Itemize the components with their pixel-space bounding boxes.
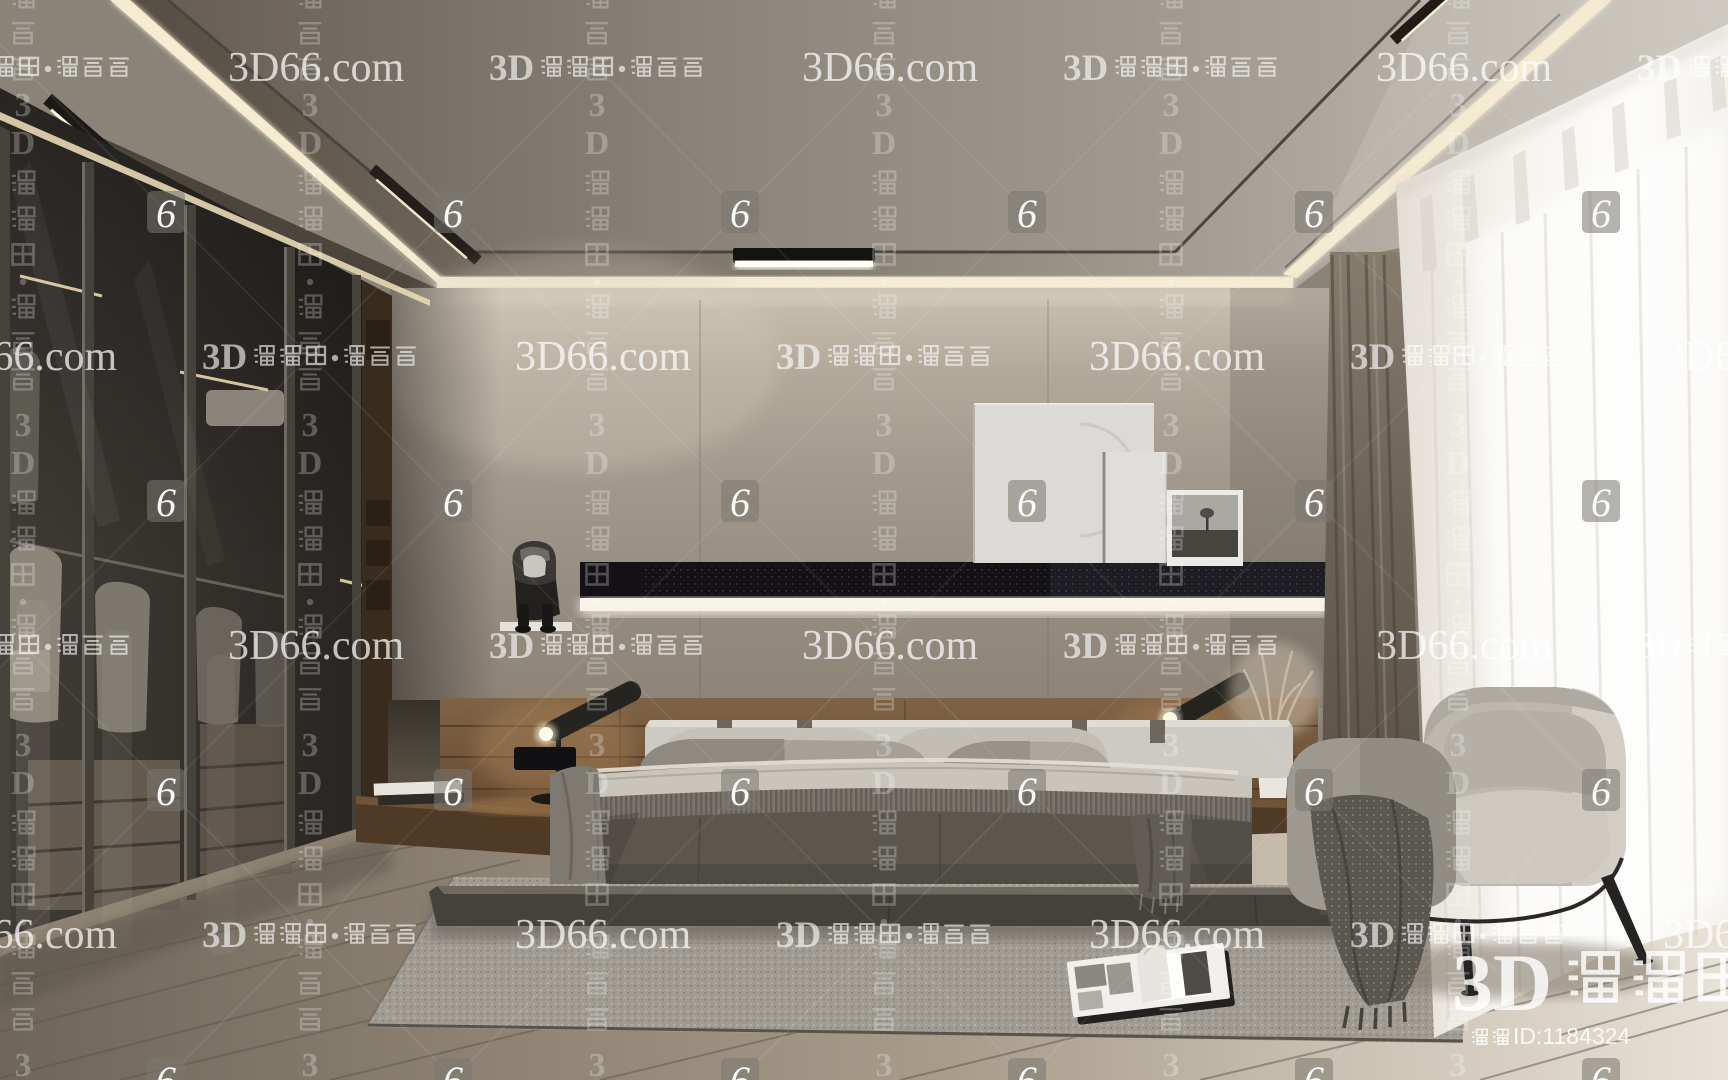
svg-text:3D66.com: 3D66.com bbox=[1376, 45, 1552, 91]
svg-text:3D66.com: 3D66.com bbox=[1376, 623, 1552, 669]
svg-text:3D66.com: 3D66.com bbox=[802, 623, 978, 669]
svg-text:3D66.com: 3D66.com bbox=[1663, 334, 1728, 380]
svg-text:3D66.com: 3D66.com bbox=[515, 334, 691, 380]
svg-text:3D66.com: 3D66.com bbox=[0, 912, 117, 958]
svg-text:3D66.com: 3D66.com bbox=[228, 45, 404, 91]
svg-text:3D66.com: 3D66.com bbox=[1089, 334, 1265, 380]
svg-text:3D66.com: 3D66.com bbox=[228, 623, 404, 669]
svg-text:3D66.com: 3D66.com bbox=[1089, 912, 1265, 958]
svg-text:3D66.com: 3D66.com bbox=[0, 334, 117, 380]
svg-text:ID:1184324: ID:1184324 bbox=[1513, 1023, 1630, 1049]
svg-text:3D66.com: 3D66.com bbox=[515, 912, 691, 958]
svg-text:3D66.com: 3D66.com bbox=[802, 45, 978, 91]
svg-text:3D: 3D bbox=[1452, 937, 1552, 1028]
